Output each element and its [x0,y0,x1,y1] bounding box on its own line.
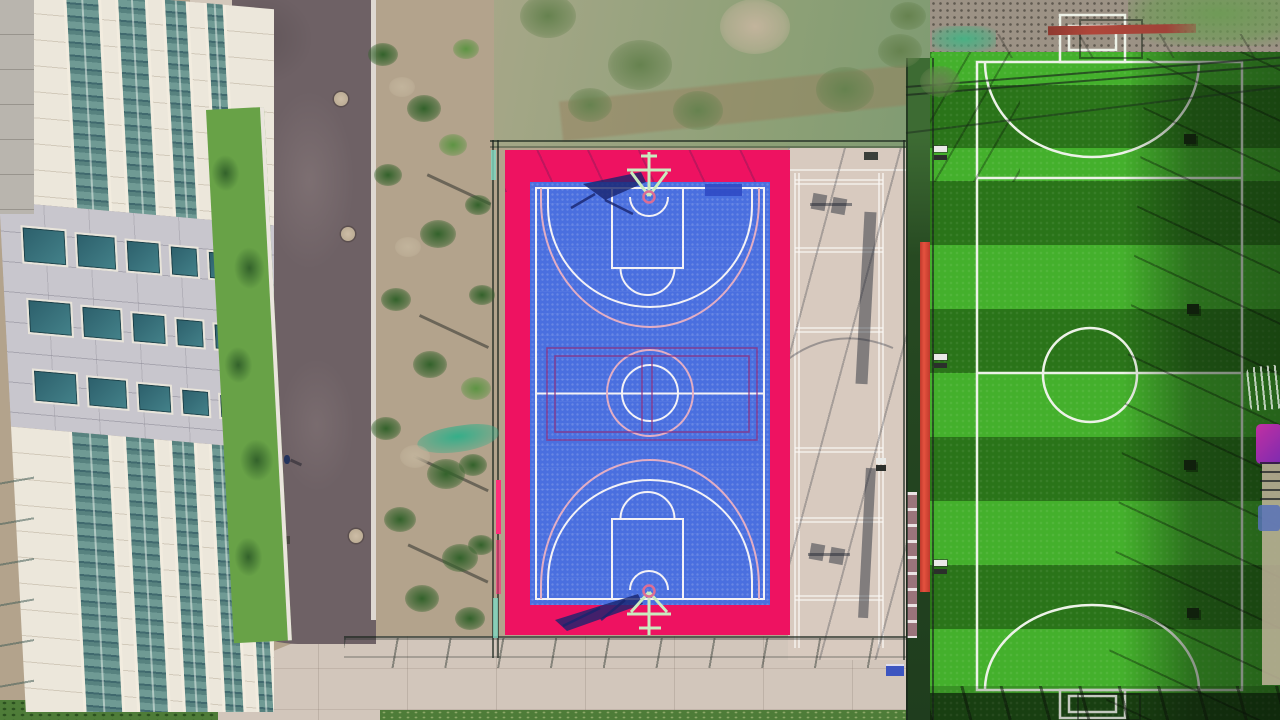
badminton-concrete-court [788,148,906,660]
fence-glint [491,150,496,180]
ladder-frame [1260,462,1280,502]
floodlight-base [1184,134,1196,144]
glass-curtain-strip [123,436,175,712]
pole-base-shadow [829,547,846,565]
pedestrian [284,455,290,464]
floodlight-base [1184,460,1196,470]
bush [407,95,441,122]
bush [459,454,487,476]
window [180,387,211,418]
fence-line [492,140,494,658]
floodlight-base [1187,608,1199,618]
glass-curtain-strip [169,441,215,712]
bench [876,458,886,464]
fence-shadow-grid [344,638,910,668]
window [130,311,168,346]
blue-canopy [1246,364,1280,411]
glass-canopy-roof [0,444,34,698]
fence-line [906,58,908,720]
bush [371,417,401,440]
window [20,225,68,267]
fence-line [497,140,499,658]
window [174,317,206,350]
bush [465,195,491,215]
blue-bench [886,664,904,676]
bush [413,351,447,378]
manhole-cover [341,227,355,241]
aerial-photo-stage [0,0,1280,720]
bush [420,220,456,248]
bush [890,2,926,30]
window [86,375,130,411]
basketball-hoop-top [627,152,671,196]
glass-curtain-strip [162,0,200,219]
ground-patch [400,445,430,468]
manhole-cover [349,529,363,543]
red-sprint-stripe [920,242,930,592]
bush [453,39,479,59]
grass-strip [380,710,908,720]
bush [374,164,402,186]
window [32,368,80,406]
bush [469,285,495,305]
fence-line [903,140,905,660]
equipment-box [864,152,878,160]
window [136,382,174,415]
sideline-bench [934,354,947,368]
ground-patch [395,237,421,257]
pole-base-shadow [811,193,828,211]
pole-base-shadow [809,543,826,561]
bush [455,607,485,630]
bush [384,507,416,532]
manhole-cover [334,92,348,106]
ground-patch [389,77,415,97]
bush [439,134,467,156]
fence-rail-shadows [788,148,906,660]
bush [816,67,874,112]
fence-shadows-on-gravel [930,34,1280,58]
bush [673,91,723,130]
pole-base-shadow [831,197,848,215]
window [169,244,201,279]
bush [568,88,612,122]
pole-arm-shadow [808,553,850,556]
window [26,298,74,338]
sideline-bench [934,146,947,160]
floodlight-base [1187,304,1199,314]
bush [878,34,922,68]
pole-arm-shadow [810,203,852,206]
glass-curtain-strip [63,0,112,211]
soccer-field [930,52,1280,720]
fence-line [490,140,906,142]
sideline-bench [934,560,947,574]
bush [920,66,960,97]
glass-curtain-strip [69,432,129,712]
ground-patch [720,0,790,54]
bush [468,535,494,555]
fence-line [490,146,906,148]
bush [368,43,398,66]
window [80,305,124,343]
fence-pink-marks [496,480,501,534]
window [124,238,162,275]
fence-glint [493,598,498,638]
bush [608,40,672,90]
magenta-canopy [1256,424,1280,464]
window [74,232,118,272]
concrete-strip [0,0,34,214]
glass-curtain-strip [115,0,159,215]
basketball-markings [505,150,790,635]
sunlit-fence-panels [907,492,917,638]
basketball-court-apron [505,150,790,635]
fence-shadows-bottom [930,686,1280,720]
blue-tarp [1258,505,1280,531]
bush [461,377,491,400]
bush [381,288,411,311]
road-curb [371,0,376,620]
bush [405,585,439,612]
